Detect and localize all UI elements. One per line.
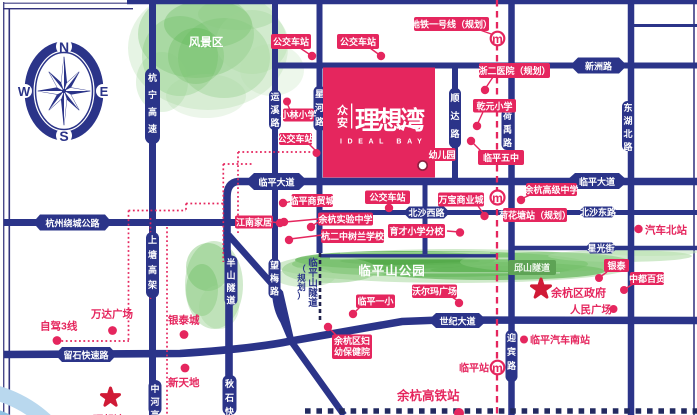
svg-text:星光街: 星光街 xyxy=(587,243,614,254)
svg-text:万达广场: 万达广场 xyxy=(90,308,133,321)
svg-text:万宝商业城: 万宝商业城 xyxy=(437,194,483,205)
svg-text:秋石快: 秋石快 xyxy=(224,378,235,415)
svg-text:荷花塘站（规划）: 荷花塘站（规划） xyxy=(498,210,571,221)
svg-text:临平山公园: 临平山公园 xyxy=(358,263,426,278)
svg-text:浙二医院（规划）: 浙二医院（规划） xyxy=(478,65,550,76)
svg-text:m: m xyxy=(492,361,503,375)
svg-text:顺达路: 顺达路 xyxy=(450,93,460,139)
svg-text:杭州绕城公路: 杭州绕城公路 xyxy=(45,218,100,229)
svg-text:临平山隧道: 临平山隧道 xyxy=(308,257,318,309)
svg-text:众: 众 xyxy=(337,103,349,117)
svg-text:银泰城: 银泰城 xyxy=(168,314,200,327)
svg-text:留石快速路: 留石快速路 xyxy=(63,350,109,361)
svg-text:风景区: 风景区 xyxy=(189,35,224,49)
svg-text:m: m xyxy=(492,191,503,205)
svg-text:安: 安 xyxy=(337,116,348,130)
svg-text:中河高: 中河高 xyxy=(150,383,159,415)
svg-text:邱山隧道: 邱山隧道 xyxy=(514,262,550,273)
svg-text:望梅路: 望梅路 xyxy=(270,260,280,297)
svg-text:幼儿园: 幼儿园 xyxy=(428,149,455,160)
svg-text:临平一小: 临平一小 xyxy=(357,296,393,307)
svg-text:（规划）: （规划） xyxy=(297,264,306,301)
svg-text:中都百货: 中都百货 xyxy=(629,273,665,284)
svg-text:小林小学: 小林小学 xyxy=(279,109,316,120)
svg-text:余杭高级中学: 余杭高级中学 xyxy=(523,184,578,195)
svg-text:北沙西路: 北沙西路 xyxy=(408,207,445,218)
svg-text:公交车站: 公交车站 xyxy=(277,133,313,144)
svg-text:临平大道: 临平大道 xyxy=(258,177,294,188)
svg-text:理想湾: 理想湾 xyxy=(355,106,425,135)
svg-text:余杭区妇: 余杭区妇 xyxy=(333,335,370,346)
svg-text:运溪路: 运溪路 xyxy=(270,92,280,128)
svg-text:沃尔玛广场: 沃尔玛广场 xyxy=(412,286,457,297)
svg-text:汽车北站: 汽车北站 xyxy=(645,224,687,237)
svg-text:临平汽车南站: 临平汽车南站 xyxy=(530,334,590,347)
svg-text:余杭高铁站: 余杭高铁站 xyxy=(396,388,460,403)
svg-text:江南家居: 江南家居 xyxy=(236,216,272,227)
svg-text:新天地: 新天地 xyxy=(168,376,200,389)
svg-text:公交车站: 公交车站 xyxy=(369,192,405,203)
svg-text:临平大道: 临平大道 xyxy=(579,176,615,187)
svg-text:育才小学分校: 育才小学分校 xyxy=(389,225,444,236)
svg-text:幼保健院: 幼保健院 xyxy=(334,346,370,357)
svg-text:IDEAL BAY: IDEAL BAY xyxy=(340,139,427,146)
svg-text:E: E xyxy=(100,84,109,99)
svg-text:世纪大道: 世纪大道 xyxy=(439,316,475,327)
svg-text:地铁一号线（规划）: 地铁一号线（规划） xyxy=(411,19,492,30)
svg-text:迎宾路: 迎宾路 xyxy=(507,332,517,371)
svg-text:北沙东路: 北沙东路 xyxy=(580,207,617,218)
svg-text:临平站: 临平站 xyxy=(459,362,489,375)
svg-text:余杭区政府: 余杭区政府 xyxy=(550,286,606,300)
svg-text:杭二中树兰学校: 杭二中树兰学校 xyxy=(321,230,385,241)
svg-text:临平商贸城: 临平商贸城 xyxy=(289,195,334,206)
svg-text:临平五中: 临平五中 xyxy=(483,152,519,163)
svg-text:乾元小学: 乾元小学 xyxy=(476,101,512,112)
svg-text:新洲路: 新洲路 xyxy=(585,61,613,72)
svg-text:N: N xyxy=(59,39,69,55)
svg-text:m: m xyxy=(492,32,503,46)
svg-text:余杭实验中学: 余杭实验中学 xyxy=(317,213,372,224)
svg-text:公交车站: 公交车站 xyxy=(273,36,309,47)
svg-text:银泰: 银泰 xyxy=(607,260,626,271)
svg-text:S: S xyxy=(59,128,68,144)
svg-text:人民广场: 人民广场 xyxy=(570,303,612,316)
svg-text:荷禹路: 荷禹路 xyxy=(502,110,513,148)
svg-text:W: W xyxy=(18,84,31,99)
svg-text:自驾3线: 自驾3线 xyxy=(40,320,78,333)
svg-text:公交车站: 公交车站 xyxy=(340,36,376,47)
